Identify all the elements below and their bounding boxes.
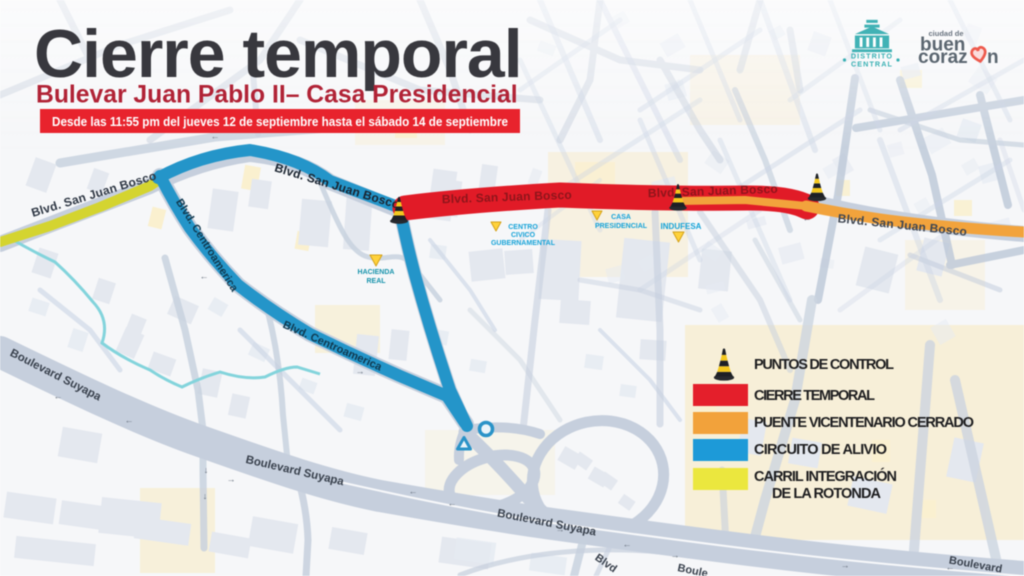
- svg-text:CARRIL INTEGRACIÓN: CARRIL INTEGRACIÓN: [754, 467, 897, 485]
- svg-text:CENTRAL: CENTRAL: [851, 60, 893, 69]
- svg-text:CENTRO: CENTRO: [508, 224, 538, 231]
- svg-text:INDUFESA: INDUFESA: [661, 222, 702, 231]
- svg-text:←: ←: [125, 415, 134, 425]
- svg-text:CASA: CASA: [611, 214, 631, 221]
- svg-text:coraz: coraz: [918, 47, 968, 68]
- svg-text:REAL: REAL: [366, 278, 386, 285]
- svg-text:HACIENDA: HACIENDA: [358, 269, 395, 276]
- svg-text:←: ←: [409, 486, 418, 496]
- svg-text:→: →: [841, 560, 850, 570]
- svg-text:n: n: [987, 47, 999, 68]
- svg-text:←: ←: [803, 213, 812, 223]
- svg-text:DE LA ROTONDA: DE LA ROTONDA: [772, 486, 882, 502]
- svg-text:CIVICO: CIVICO: [511, 232, 536, 239]
- svg-text:→: →: [671, 550, 680, 560]
- svg-text:←: ←: [623, 539, 632, 549]
- svg-text:PUENTE VICENTENARIO CERRADO: PUENTE VICENTENARIO CERRADO: [754, 415, 974, 431]
- svg-text:←: ←: [54, 391, 63, 401]
- svg-text:↓: ↓: [204, 465, 209, 475]
- svg-text:PUNTOS DE CONTROL: PUNTOS DE CONTROL: [754, 357, 894, 373]
- svg-text:→: →: [356, 366, 365, 376]
- svg-text:GUBERNAMENTAL: GUBERNAMENTAL: [491, 240, 556, 247]
- svg-text:←: ←: [946, 562, 955, 572]
- svg-text:CIRCUITO DE ALIVIO: CIRCUITO DE ALIVIO: [754, 442, 887, 458]
- svg-text:→: →: [227, 474, 236, 484]
- svg-text:↓: ↓: [203, 491, 208, 501]
- svg-text:→: →: [556, 524, 565, 534]
- svg-text:Desde las 11:55 pm del jueves: Desde las 11:55 pm del jueves 12 de sept…: [52, 114, 508, 129]
- svg-text:←: ←: [448, 498, 457, 508]
- svg-text:CIERRE TEMPORAL: CIERRE TEMPORAL: [754, 388, 875, 404]
- svg-text:←: ←: [200, 271, 209, 281]
- svg-text:Bulevar Juan Pablo II– Casa Pr: Bulevar Juan Pablo II– Casa Presidencial: [36, 82, 518, 109]
- svg-text:PRESIDENCIAL: PRESIDENCIAL: [595, 223, 648, 230]
